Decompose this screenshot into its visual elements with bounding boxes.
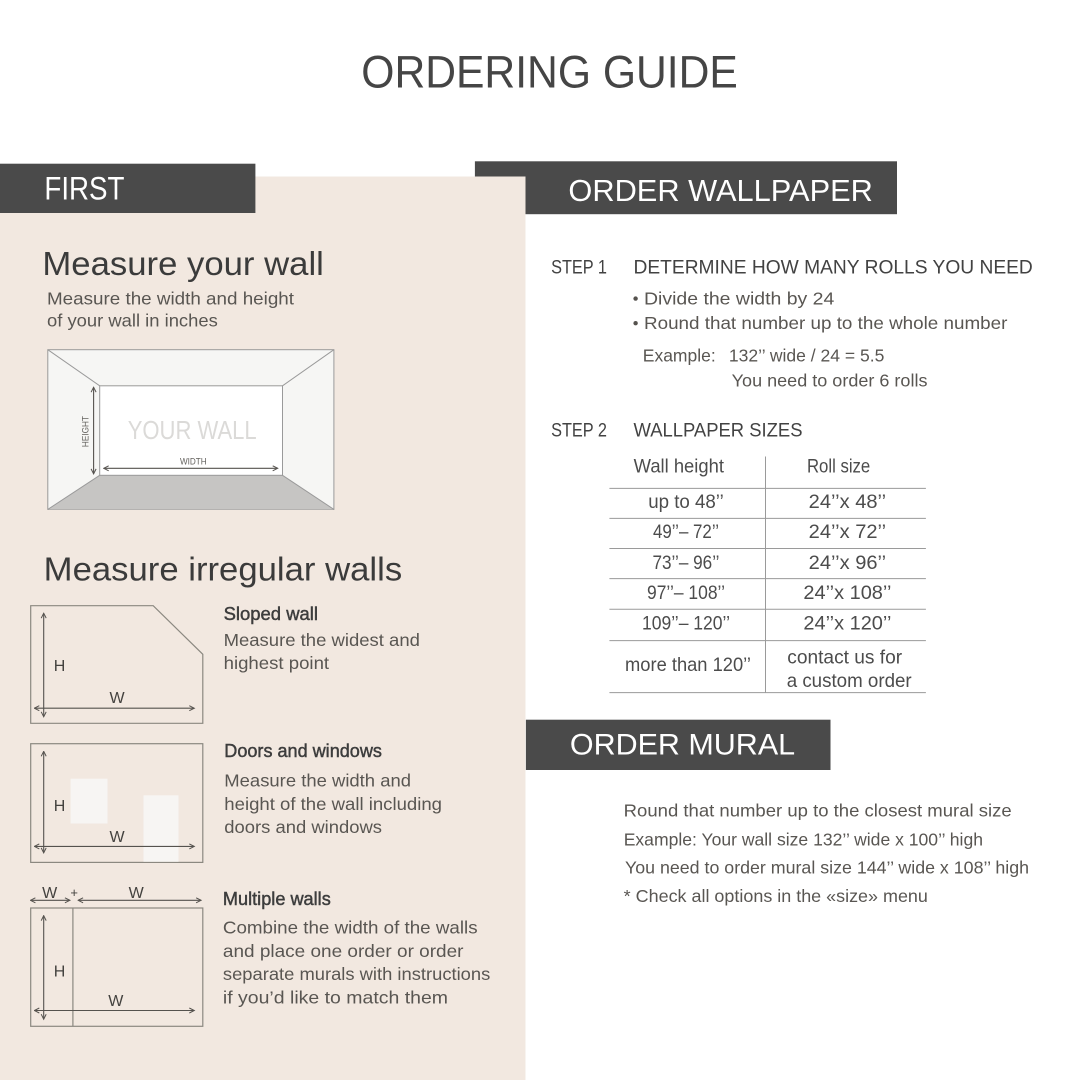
svg-text:YOUR WALL: YOUR WALL — [128, 417, 257, 445]
svg-text:highest point: highest point — [224, 653, 330, 673]
svg-text:HEIGHT: HEIGHT — [80, 416, 90, 447]
svg-text:H: H — [54, 798, 66, 815]
svg-text:Measure the width and height: Measure the width and height — [47, 288, 294, 308]
svg-text:Measure your wall: Measure your wall — [42, 246, 324, 283]
svg-text:W: W — [109, 829, 125, 846]
svg-text:Combine the width of the walls: Combine the width of the walls — [223, 918, 478, 938]
svg-text:Measure the width and: Measure the width and — [224, 771, 411, 791]
svg-text:WALLPAPER SIZES: WALLPAPER SIZES — [634, 419, 803, 441]
svg-text:ORDERING GUIDE: ORDERING GUIDE — [361, 47, 738, 98]
svg-text:ORDER WALLPAPER: ORDER WALLPAPER — [568, 173, 873, 208]
svg-text:+: + — [70, 885, 78, 900]
svg-text:and place one order or order: and place one order or order — [223, 941, 464, 961]
svg-text:H: H — [54, 658, 66, 675]
svg-text:up to 48’’: up to 48’’ — [648, 492, 724, 513]
svg-text:Multiple walls: Multiple walls — [223, 889, 331, 909]
svg-text:Measure the widest and: Measure the widest and — [224, 630, 420, 650]
svg-text:Round that number up to the wh: Round that number up to the whole number — [644, 313, 1008, 333]
svg-text:You need to order 6 rolls: You need to order 6 rolls — [732, 371, 928, 391]
svg-text:W: W — [42, 885, 58, 902]
svg-text:separate murals with instructi: separate murals with instructions — [223, 964, 491, 984]
svg-text:W: W — [129, 885, 145, 902]
svg-text:Wall height: Wall height — [634, 457, 725, 478]
svg-text:H: H — [54, 964, 66, 981]
svg-text:Measure irregular walls: Measure irregular walls — [44, 552, 403, 589]
svg-text:24’’x 96’’: 24’’x 96’’ — [809, 553, 886, 574]
svg-text:ORDER MURAL: ORDER MURAL — [570, 729, 795, 762]
svg-text:109’’– 120’’: 109’’– 120’’ — [642, 614, 730, 635]
svg-text:24’’x 72’’: 24’’x 72’’ — [809, 522, 886, 543]
svg-text:132’’ wide / 24 = 5.5: 132’’ wide / 24 = 5.5 — [729, 346, 885, 366]
svg-text:height of the wall including: height of the wall including — [224, 794, 442, 814]
svg-text:24’’x 120’’: 24’’x 120’’ — [803, 614, 891, 635]
svg-text:WIDTH: WIDTH — [180, 457, 207, 467]
svg-text:more than 120’’: more than 120’’ — [625, 655, 751, 676]
svg-text:if you’d like to match them: if you’d like to match them — [223, 988, 448, 1008]
svg-text:* Check all options in the «si: * Check all options in the «size» menu — [624, 886, 928, 906]
svg-text:contact us for: contact us for — [787, 648, 903, 669]
svg-text:73’’– 96’’: 73’’– 96’’ — [653, 553, 720, 574]
svg-text:Example: Your wall size 132’’: Example: Your wall size 132’’ wide x 100… — [624, 829, 983, 849]
svg-text:DETERMINE HOW MANY ROLLS YOU N: DETERMINE HOW MANY ROLLS YOU NEED — [634, 257, 1033, 279]
svg-text:Example:: Example: — [643, 346, 716, 366]
svg-text:24’’x 48’’: 24’’x 48’’ — [809, 492, 886, 513]
svg-text:of your wall in inches: of your wall in inches — [47, 311, 218, 331]
svg-text:24’’x 108’’: 24’’x 108’’ — [803, 583, 891, 604]
svg-text:W: W — [108, 993, 124, 1010]
svg-text:49’’– 72’’: 49’’– 72’’ — [653, 522, 719, 543]
svg-text:doors and windows: doors and windows — [224, 817, 382, 837]
svg-text:Sloped wall: Sloped wall — [224, 604, 318, 624]
svg-text:97’’– 108’’: 97’’– 108’’ — [647, 583, 725, 604]
svg-text:W: W — [109, 690, 125, 707]
svg-text:Doors and windows: Doors and windows — [224, 741, 382, 761]
svg-text:Divide the width by 24: Divide the width by 24 — [644, 288, 835, 308]
svg-text:Round that number up to the cl: Round that number up to the closest mura… — [624, 801, 1012, 821]
svg-text:a custom order: a custom order — [787, 671, 913, 692]
svg-text:FIRST: FIRST — [44, 171, 124, 207]
svg-text:STEP 1: STEP 1 — [551, 257, 607, 279]
svg-text:STEP 2: STEP 2 — [551, 419, 607, 441]
svg-text:Roll size: Roll size — [807, 457, 870, 478]
svg-text:You need to order mural size 1: You need to order mural size 144’’ wide … — [625, 858, 1029, 878]
